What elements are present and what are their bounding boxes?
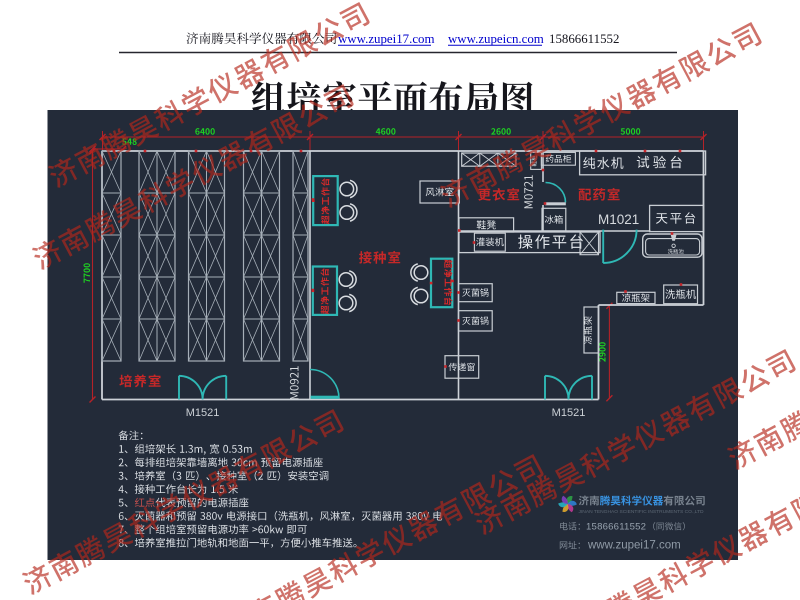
svg-text:www.zupei17.com: www.zupei17.com [587,540,681,552]
svg-text:M1521: M1521 [186,407,220,419]
svg-text:www.zupei17.com: www.zupei17.com [338,32,435,46]
svg-text:15866611552: 15866611552 [549,32,619,46]
svg-text:M1021: M1021 [598,212,639,227]
svg-text:M1521: M1521 [552,407,586,419]
svg-text:www.zupeicn.com: www.zupeicn.com [448,32,544,46]
svg-text:15866611552: 15866611552 [586,522,646,533]
svg-text:JINAN TENGHAO SCIENTIFIC INSTR: JINAN TENGHAO SCIENTIFIC INSTRUMENTS CO.… [579,509,705,515]
